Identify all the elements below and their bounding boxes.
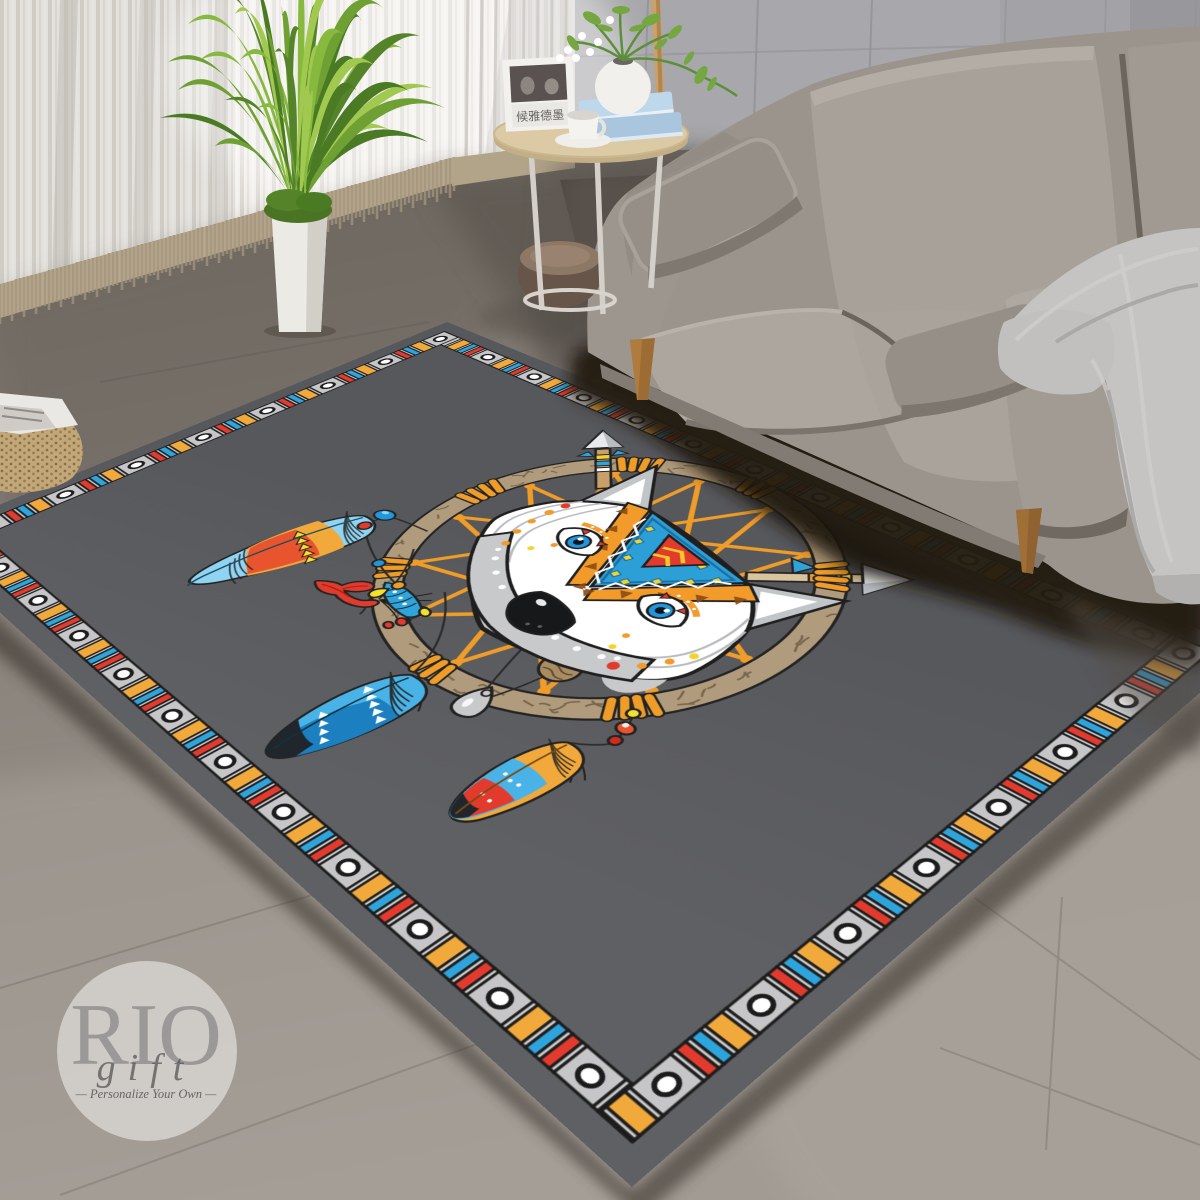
svg-text:候雅德墨: 候雅德墨 [516, 107, 565, 124]
svg-text:gift: gift [97, 1047, 196, 1089]
svg-text:— Personalize Your Own —: — Personalize Your Own — [75, 1087, 217, 1101]
